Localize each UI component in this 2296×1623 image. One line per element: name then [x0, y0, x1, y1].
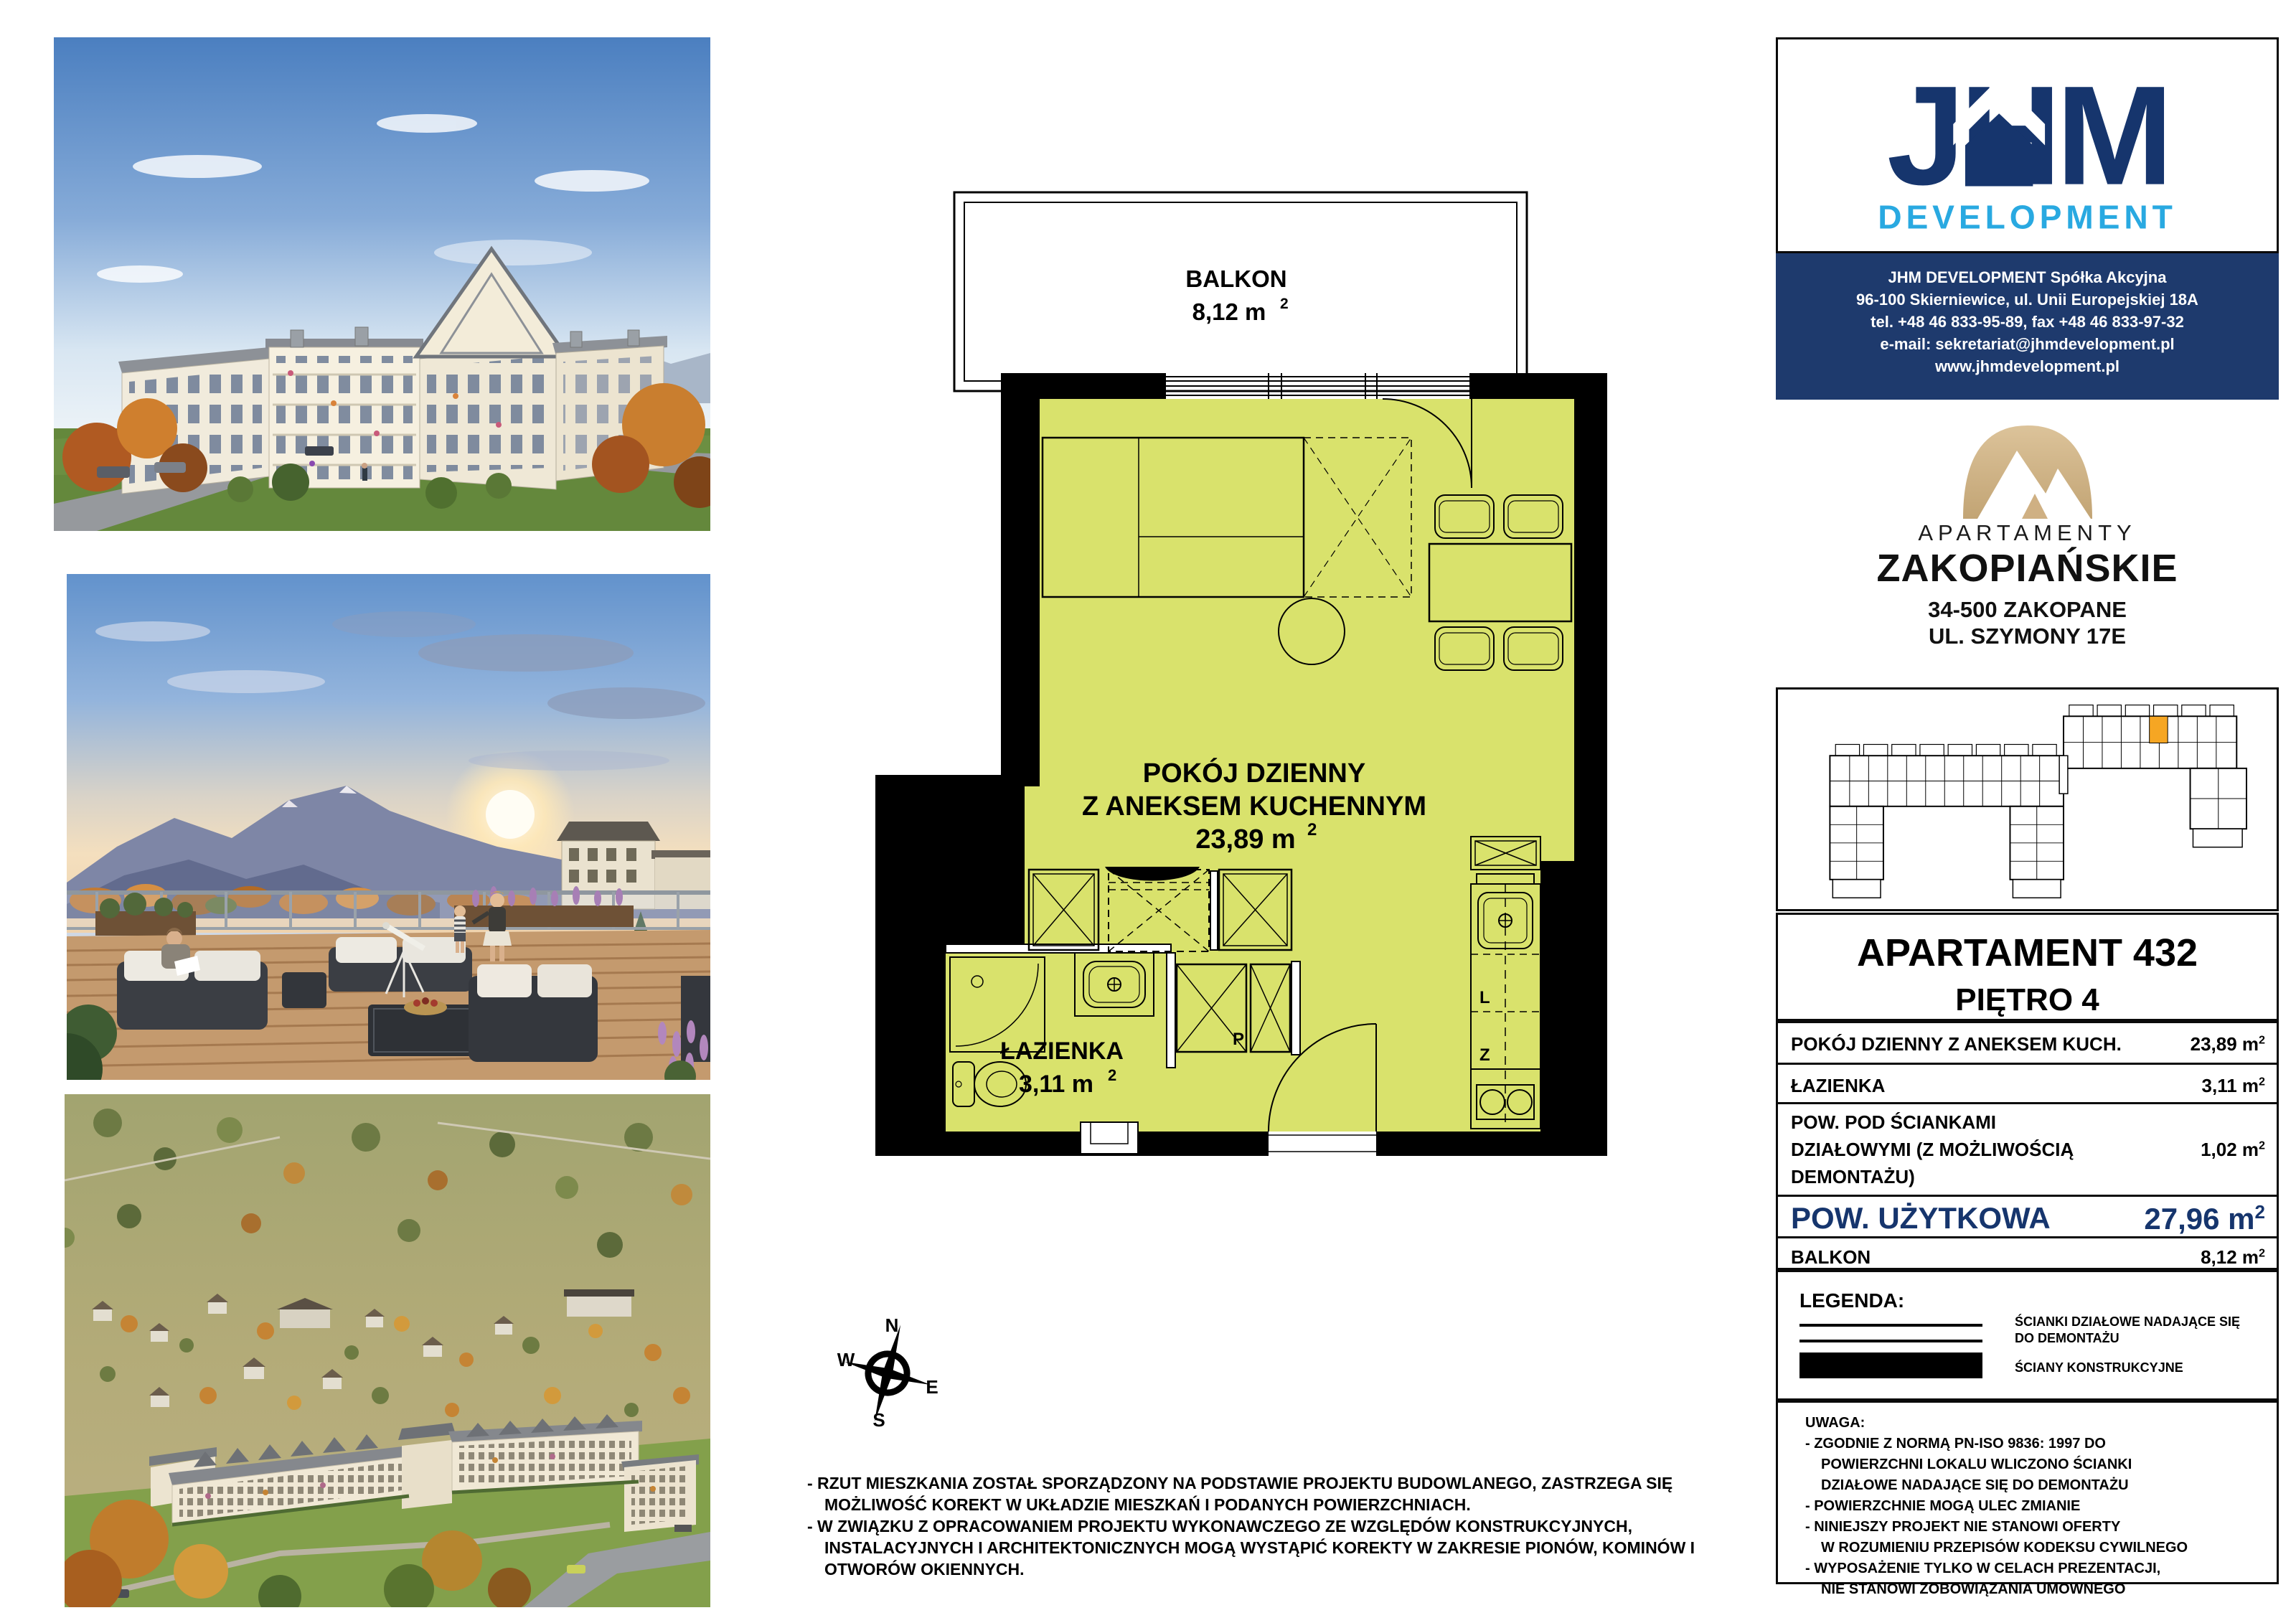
room-area-sup: 2 [1307, 820, 1317, 839]
developer-phones: tel. +48 46 833-95-89, fax +48 46 833-97… [1776, 311, 2279, 333]
notes-title: UWAGA: [1805, 1413, 2277, 1434]
project-address-1: 34-500 ZAKOPANE [1776, 596, 2279, 623]
footnote-line: MOŻLIWOŚĆ KOREKT W UKŁADZIE MIESZKAŃ I P… [824, 1494, 1726, 1515]
note-line: POWIERZCHNI LOKALU WLICZONO ŚCIANKI [1821, 1454, 2277, 1475]
compass-s: S [872, 1409, 885, 1429]
apartment-floor: PIĘTRO 4 [1778, 982, 2277, 1018]
table-row: POW. POD ŚCIANKAMI DZIAŁOWYMI (Z MOŻLIWO… [1778, 1102, 2277, 1195]
bath-area-sup: 2 [1108, 1066, 1116, 1084]
dishwasher-label: Z [1479, 1045, 1490, 1065]
note-line: NIE STANOWI ZOBOWIĄZANIA UMOWNEGO [1821, 1579, 2277, 1600]
room-label-1: POKÓJ DZIENNY [1143, 757, 1365, 789]
legend-label-structural: ŚCIANY KONSTRUKCYJNE [2015, 1360, 2183, 1376]
total-value: 27,96 m2 [2144, 1201, 2265, 1236]
photo-aerial-view [65, 1094, 710, 1607]
legend-symbol-structural [1799, 1352, 1982, 1378]
project-logo-box: APARTAMENTY ZAKOPIAŃSKIE 34-500 ZAKOPANE… [1776, 413, 2279, 685]
balcony-area: 8,12 m [1192, 298, 1266, 325]
building-wing-left [1830, 745, 2064, 898]
note-line: DZIAŁOWE NADAJĄCE SIĘ DO DEMONTAŻU [1821, 1475, 2277, 1496]
legend-box: LEGENDA: ŚCIANKI DZIAŁOWE NADAJĄCE SIĘ D… [1776, 1270, 2279, 1401]
row-label: BALKON [1791, 1246, 1871, 1269]
building-overview-plan [1778, 690, 2277, 909]
project-address-2: UL. SZYMONY 17E [1776, 623, 2279, 649]
bath-area: 3,11 m [1019, 1071, 1093, 1098]
project-brand-main: ZAKOPIAŃSKIE [1776, 546, 2279, 591]
apartment-title: APARTAMENT 432 [1778, 931, 2277, 975]
photo-building-exterior [54, 37, 710, 531]
photo-terrace-art [67, 574, 710, 1080]
balcony-area-sup: 2 [1280, 296, 1289, 312]
total-label: POW. UŻYTKOWA [1791, 1201, 2051, 1236]
footnote-line: INSTALACYJNYCH I ARCHITEKTONICZNYCH MOGĄ… [824, 1537, 1726, 1558]
row-value: 1,02 m2 [2201, 1139, 2265, 1161]
table-row: ŁAZIENKA 3,11 m2 [1778, 1063, 2277, 1102]
row-value: 23,89 m2 [2191, 1033, 2265, 1055]
row-value: 8,12 m2 [2201, 1246, 2265, 1269]
developer-contact-box: JHM DEVELOPMENT Spółka Akcyjna 96-100 Sk… [1776, 253, 2279, 400]
jhm-logo-text: JHM [1887, 57, 2168, 215]
row-label: ŁAZIENKA [1791, 1075, 1885, 1097]
developer-email[interactable]: e-mail: sekretariat@jhmdevelopment.pl [1776, 333, 2279, 355]
washer-label: P [1233, 1030, 1244, 1049]
jhm-logo-subtext: DEVELOPMENT [1878, 199, 2177, 236]
row-value: 3,11 m2 [2202, 1075, 2265, 1097]
photo-building-exterior-art [54, 37, 710, 531]
compass-rose-icon: N W E S [836, 1314, 944, 1429]
table-row: POKÓJ DZIENNY Z ANEKSEM KUCH. 23,89 m2 [1778, 1023, 2277, 1063]
floor-plan: BALKON 8,12 m 2 [809, 164, 1702, 1286]
developer-address: 96-100 Skierniewice, ul. Unii Europejski… [1776, 288, 2279, 311]
wall-niche [1081, 1122, 1138, 1154]
note-line: W ROZUMIENIU PRZEPISÓW KODEKSU CYWILNEGO [1821, 1538, 2277, 1558]
windows [1166, 373, 1469, 399]
bath-label: ŁAZIENKA [1000, 1038, 1124, 1065]
footnote-line: - W ZWIĄZKU Z OPRACOWANIEM PROJEKTU WYKO… [807, 1515, 1726, 1537]
legend-label-partition: ŚCIANKI DZIAŁOWE NADAJĄCE SIĘ DO DEMONTA… [2015, 1314, 2240, 1347]
building-overview-box [1776, 687, 2279, 911]
compass-n: N [885, 1314, 899, 1336]
green-car [567, 1565, 585, 1573]
note-line: - NINIEJSZY PROJEKT NIE STANOWI OFERTY [1805, 1517, 2277, 1538]
developer-website[interactable]: www.jhmdevelopment.pl [1776, 355, 2279, 377]
flyer-page: BALKON 8,12 m 2 [0, 0, 2296, 1623]
person [362, 463, 367, 481]
room-area: 23,89 m [1195, 824, 1295, 855]
apartment-header-box: APARTAMENT 432 PIĘTRO 4 [1776, 913, 2279, 1021]
row-label: POKÓJ DZIENNY Z ANEKSEM KUCH. [1791, 1033, 2122, 1055]
parked-car [674, 1525, 692, 1532]
legend-title: LEGENDA: [1799, 1289, 1904, 1312]
vent-shaft [1471, 837, 1540, 870]
area-table: POKÓJ DZIENNY Z ANEKSEM KUCH. 23,89 m2 Ł… [1776, 1021, 2279, 1270]
photo-aerial-art [65, 1094, 710, 1607]
row-label-line: POW. POD ŚCIANKAMI [1791, 1111, 1996, 1134]
plan-footnotes: - RZUT MIESZKANIA ZOSTAŁ SPORZĄDZONY NA … [807, 1472, 1726, 1580]
fridge-label: L [1479, 988, 1490, 1007]
table-row-balcony: BALKON 8,12 m2 [1778, 1236, 2277, 1272]
selected-unit-marker[interactable] [2150, 716, 2168, 743]
balcony-label: BALKON [1185, 265, 1286, 292]
developer-logo-box: JHM DEVELOPMENT [1776, 37, 2279, 253]
note-line: - ZGODNIE Z NORMĄ PN-ISO 9836: 1997 DO [1805, 1434, 2277, 1454]
room-label-2: Z ANEKSEM KUCHENNYM [1082, 791, 1426, 822]
project-brand-top: APARTAMENTY [1776, 520, 2279, 546]
balcony: BALKON 8,12 m 2 [954, 192, 1527, 391]
zakopianskie-logo-icon [1863, 413, 2193, 520]
compass-e: E [926, 1376, 938, 1398]
footnote-line: - RZUT MIESZKANIA ZOSTAŁ SPORZĄDZONY NA … [807, 1472, 1726, 1494]
compass-w: W [837, 1349, 855, 1370]
note-line: - POWIERZCHNIE MOGĄ ULEC ZMIANIE [1805, 1496, 2277, 1517]
legend-symbol-partition [1799, 1324, 1982, 1342]
footnote-line: OTWORÓW OKIENNYCH. [824, 1558, 1726, 1580]
notes-box: UWAGA: - ZGODNIE Z NORMĄ PN-ISO 9836: 19… [1776, 1401, 2279, 1584]
developer-company: JHM DEVELOPMENT Spółka Akcyjna [1776, 266, 2279, 288]
photo-terrace-view [67, 574, 710, 1080]
row-label-line: DEMONTAŻU) [1791, 1166, 1915, 1188]
note-line: - WYPOSAŻENIE TYLKO W CELACH PREZENTACJI… [1805, 1558, 2277, 1579]
jhm-logo: JHM DEVELOPMENT [1778, 39, 2277, 251]
table-row-total: POW. UŻYTKOWA 27,96 m2 [1778, 1195, 2277, 1236]
row-label-line: DZIAŁOWYMI (Z MOŻLIWOŚCIĄ [1791, 1139, 2074, 1161]
sun [486, 790, 535, 839]
